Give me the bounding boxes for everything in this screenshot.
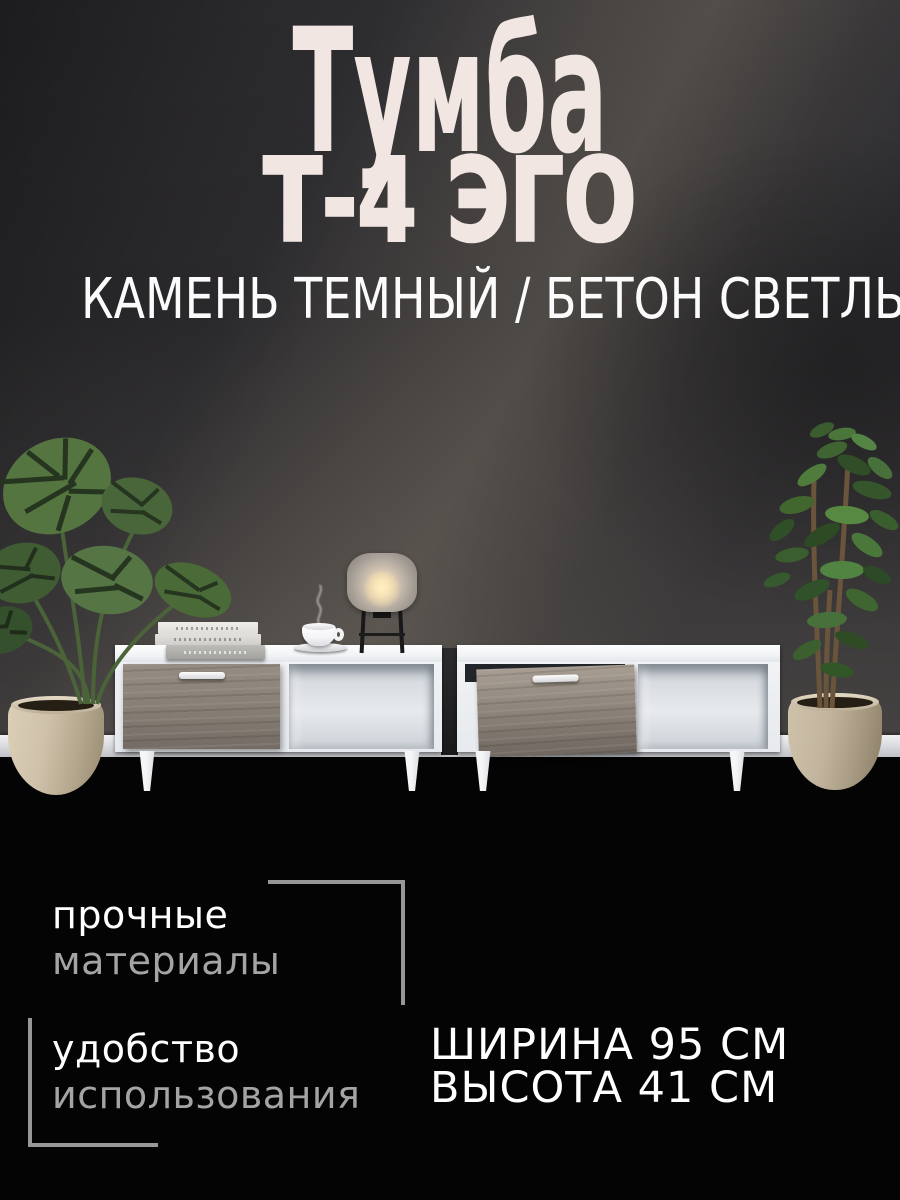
- steam-wisp: [299, 585, 339, 627]
- lamp-glow: [363, 570, 401, 608]
- table-lamp: [346, 553, 418, 654]
- coffee-cup: [293, 585, 349, 655]
- corner-bracket-top-right: [268, 880, 405, 1005]
- tv-stand-right: [457, 645, 780, 752]
- feature-ease-of-use: удобство использования: [52, 1026, 360, 1118]
- cabinet-gap-shadow: [441, 648, 458, 755]
- drawer-front-open: [476, 664, 637, 757]
- feature-line-secondary: использования: [52, 1072, 360, 1118]
- dimensions-block: ШИРИНА 95 СМ ВЫСОТА 41 СМ: [430, 1024, 789, 1110]
- feature-durable-materials: прочные материалы: [52, 892, 280, 984]
- ficus-plant: [752, 420, 900, 720]
- open-shelf: [289, 664, 434, 749]
- feature-line-primary: удобство: [52, 1026, 360, 1072]
- feature-line-primary: прочные: [52, 892, 280, 938]
- product-title-line2: Т-4 ЭГО: [113, 144, 788, 258]
- color-variant-subtitle: КАМЕНЬ ТЕМНЫЙ / БЕТОН СВЕТЛЫЙ: [81, 272, 819, 328]
- drawer-handle: [532, 674, 578, 682]
- cabinet-top-surface: [457, 645, 780, 662]
- monstera-plant: [0, 408, 237, 708]
- open-shelf: [638, 664, 768, 749]
- monstera-leaf: [0, 599, 39, 661]
- cup-handle: [333, 628, 344, 641]
- monstera-leaf: [0, 536, 66, 610]
- height-spec: ВЫСОТА 41 СМ: [430, 1067, 789, 1110]
- ficus-leaves: [762, 420, 900, 680]
- feature-line-secondary: материалы: [52, 938, 280, 984]
- width-spec: ШИРИНА 95 СМ: [430, 1024, 789, 1067]
- lamp-crossbar: [359, 633, 405, 636]
- product-card: Тумба Т-4 ЭГО КАМЕНЬ ТЕМНЫЙ / БЕТОН СВЕТ…: [0, 0, 900, 1200]
